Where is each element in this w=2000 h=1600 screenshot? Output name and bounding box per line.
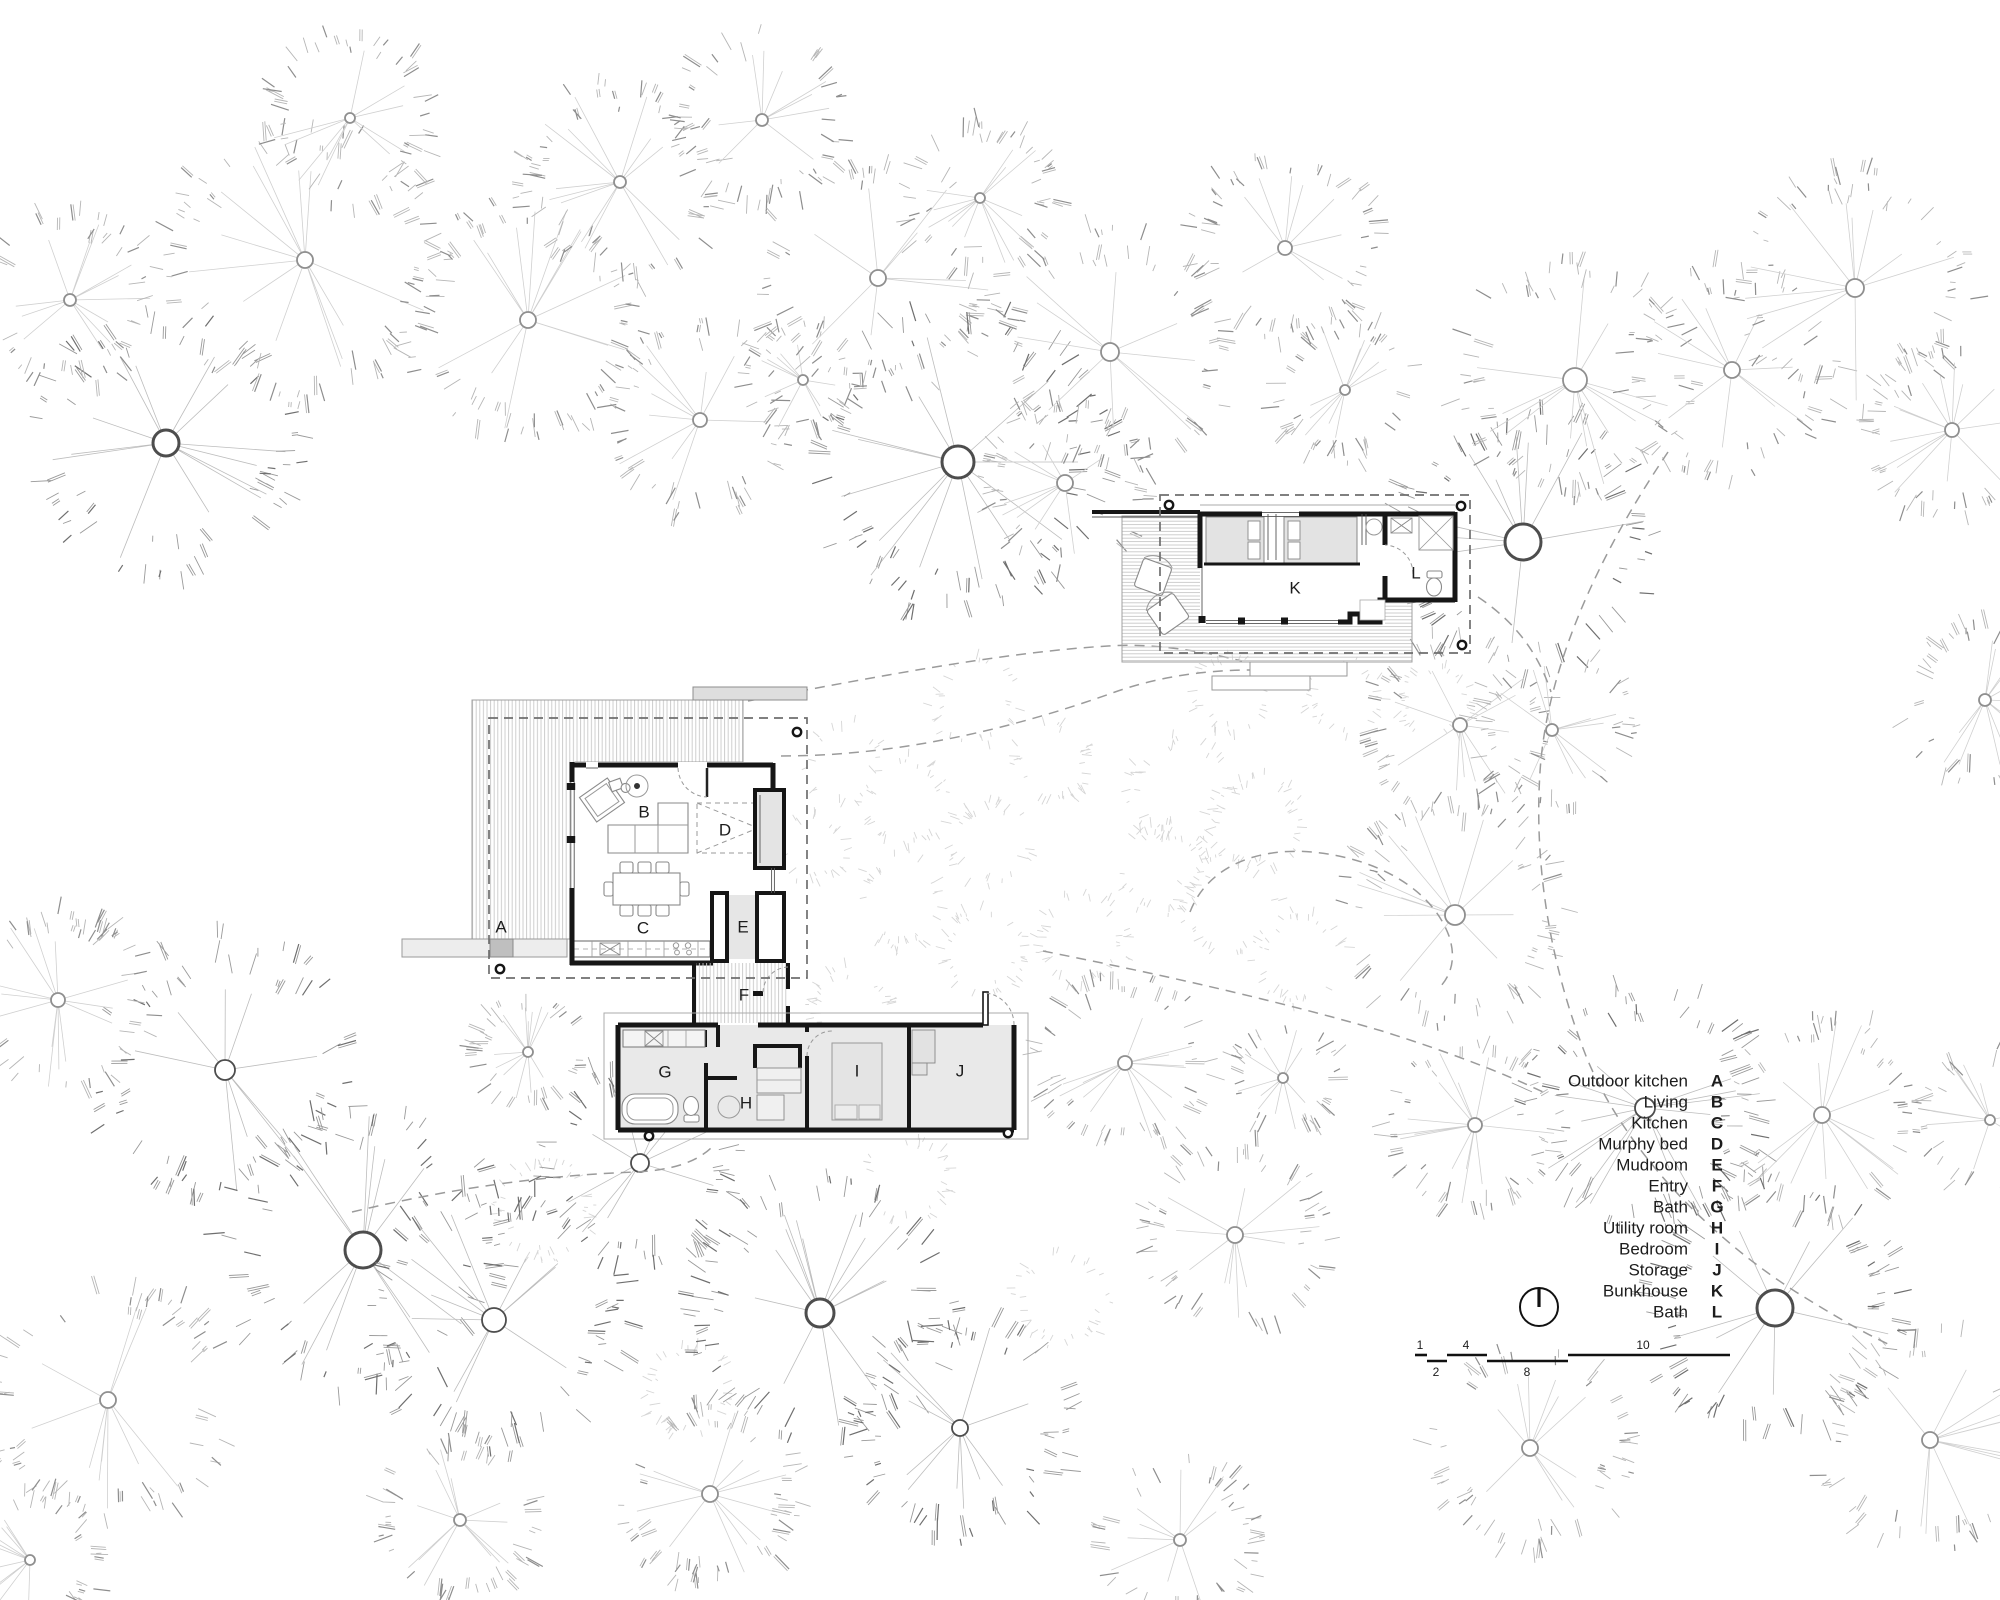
tree [1441, 252, 1703, 506]
bath-l-floor [1385, 512, 1455, 602]
legend-room-name: Bath [1653, 1303, 1688, 1322]
entry-door-leaf [753, 991, 763, 996]
wall-marker [616, 1092, 621, 1101]
tree [839, 1307, 1082, 1545]
north-arrow [1520, 1288, 1558, 1326]
shrub-ring [1173, 848, 1287, 955]
room-label-J: J [956, 1062, 965, 1081]
legend-room-letter: B [1711, 1093, 1723, 1112]
site-path-dashed [781, 670, 1252, 756]
tree [1810, 1320, 2000, 1551]
room-label-A: A [495, 918, 507, 937]
legend-room-name: Entry [1648, 1177, 1688, 1196]
column-marker [1458, 641, 1466, 649]
legend-room-name: Murphy bed [1598, 1135, 1688, 1154]
closet-g [623, 1030, 705, 1047]
bed [832, 1043, 882, 1120]
tree [91, 921, 368, 1206]
tree [597, 318, 809, 527]
room-label-I: I [855, 1062, 860, 1081]
column-marker [1165, 501, 1173, 509]
tree [1726, 158, 1989, 419]
legend-room-letter: I [1715, 1240, 1720, 1259]
tree [1023, 970, 1225, 1150]
shrub-ring [641, 1338, 733, 1439]
tree [259, 26, 441, 218]
shrub-ring [1200, 768, 1307, 874]
tree [753, 154, 1010, 405]
tree [0, 897, 162, 1099]
legend-room-letter: E [1711, 1156, 1722, 1175]
scale-bar-number: 4 [1463, 1338, 1470, 1352]
tree [0, 1276, 235, 1529]
tree [203, 1100, 518, 1405]
tree [1261, 312, 1422, 472]
shrub-ring [1009, 717, 1093, 804]
column-marker [793, 728, 801, 736]
shrub-ring [775, 807, 852, 886]
tree [364, 1175, 643, 1462]
tree [1912, 1039, 2000, 1201]
shrub-ring [490, 1158, 597, 1263]
bathtub [622, 1094, 678, 1124]
tree [512, 73, 735, 297]
tree [30, 305, 313, 589]
legend-room-name: Bedroom [1619, 1240, 1688, 1259]
post [1199, 616, 1206, 623]
tree [366, 1433, 544, 1600]
shrub-ring [945, 795, 1037, 890]
shrub-ring [858, 850, 947, 956]
deck-step [1250, 662, 1347, 676]
room-label-C: C [637, 919, 649, 938]
legend-room-letter: D [1711, 1135, 1723, 1154]
shrub-ring [1007, 1247, 1113, 1348]
scale-bar-number: 8 [1524, 1365, 1531, 1379]
legend-room-name: Bath [1653, 1198, 1688, 1217]
tree [1459, 642, 1640, 815]
room-label-E: E [737, 918, 748, 937]
window-bay [755, 790, 784, 868]
tree [460, 994, 587, 1111]
shrub-ring [923, 649, 1024, 750]
tree [1372, 1036, 1570, 1220]
bunk-bed [1284, 517, 1357, 563]
legend-room-name: Mudroom [1616, 1156, 1688, 1175]
room-label-H: H [740, 1094, 752, 1113]
storage-door-leaf [983, 992, 988, 1025]
bunk-bed [1206, 517, 1264, 563]
tree [1893, 610, 2000, 786]
legend-room-letter: C [1711, 1114, 1723, 1133]
room-label-G: G [658, 1063, 671, 1082]
tree [1223, 1025, 1348, 1135]
bunkhouse [1092, 505, 1455, 690]
roof-canopy-bar [693, 687, 807, 700]
legend-room-letter: G [1710, 1198, 1723, 1217]
legend-room-letter: F [1712, 1177, 1722, 1196]
deck-step [1212, 676, 1310, 690]
shrub-ring [936, 901, 1030, 997]
column-marker [1004, 1129, 1012, 1137]
shrub-ring [1248, 907, 1355, 1012]
site-path-dashed [1190, 851, 1452, 987]
room-label-L: L [1411, 564, 1420, 583]
toilet-l [1427, 571, 1443, 596]
trees-layer [0, 24, 2000, 1600]
tree [662, 24, 853, 214]
legend-room-letter: H [1711, 1219, 1723, 1238]
column-marker [496, 965, 504, 973]
mullion [1281, 618, 1288, 625]
room-label-B: B [638, 803, 649, 822]
mullion [1238, 618, 1245, 625]
column-marker [1457, 502, 1465, 510]
room-label-F: F [739, 986, 749, 1005]
tree [1136, 1130, 1340, 1334]
tree [896, 108, 1071, 289]
room-label-D: D [719, 821, 731, 840]
tree [987, 214, 1235, 484]
mullion [567, 783, 575, 790]
tree [678, 1168, 965, 1445]
legend-room-name: Bunkhouse [1603, 1282, 1688, 1301]
tree [809, 301, 1123, 620]
legend-room-name: Kitchen [1631, 1114, 1688, 1133]
legend-room-name: Outdoor kitchen [1568, 1072, 1688, 1091]
walkway-slab [402, 939, 567, 957]
kitchen-counter [574, 941, 710, 957]
storage-door-swing [986, 993, 1014, 1025]
tree [1856, 329, 2000, 525]
legend-room-letter: J [1712, 1261, 1721, 1280]
tree [1180, 153, 1388, 352]
tree [1336, 796, 1578, 1031]
shrub-ring [802, 715, 884, 807]
site-path-dashed [1478, 597, 1551, 692]
shrub-ring [1121, 729, 1240, 842]
entry-mat [1360, 600, 1385, 620]
legend-room-name: Living [1644, 1093, 1688, 1112]
tree [618, 1395, 811, 1592]
tree [1613, 250, 1857, 489]
scale-bar-number: 1 [1417, 1338, 1424, 1352]
legend-room-letter: A [1711, 1072, 1723, 1091]
tree [0, 1482, 110, 1600]
scale-bar-number: 10 [1636, 1338, 1650, 1352]
shrub-ring [855, 749, 957, 854]
legend-room-name: Storage [1628, 1261, 1688, 1280]
tree [150, 118, 455, 413]
site-path-dashed [1043, 951, 1543, 1092]
legend: Outdoor kitchenALivingBKitchenCMurphy be… [1568, 1072, 1724, 1322]
tree [1711, 1010, 1936, 1230]
legend-room-name: Utility room [1603, 1219, 1688, 1238]
room-label-K: K [1289, 579, 1301, 598]
legend-room-letter: L [1712, 1303, 1722, 1322]
mullion [567, 836, 575, 843]
site-plan-drawing: ABCDEFGHIJKL Outdoor kitchenALivingBKitc… [0, 0, 2000, 1600]
legend-room-letter: K [1711, 1282, 1724, 1301]
tree [1090, 1454, 1265, 1600]
scale-bar-number: 2 [1433, 1365, 1440, 1379]
shrub-ring [863, 1134, 956, 1224]
toilet-g [684, 1097, 700, 1123]
walkway-step [490, 939, 513, 957]
column-marker [645, 1132, 653, 1140]
